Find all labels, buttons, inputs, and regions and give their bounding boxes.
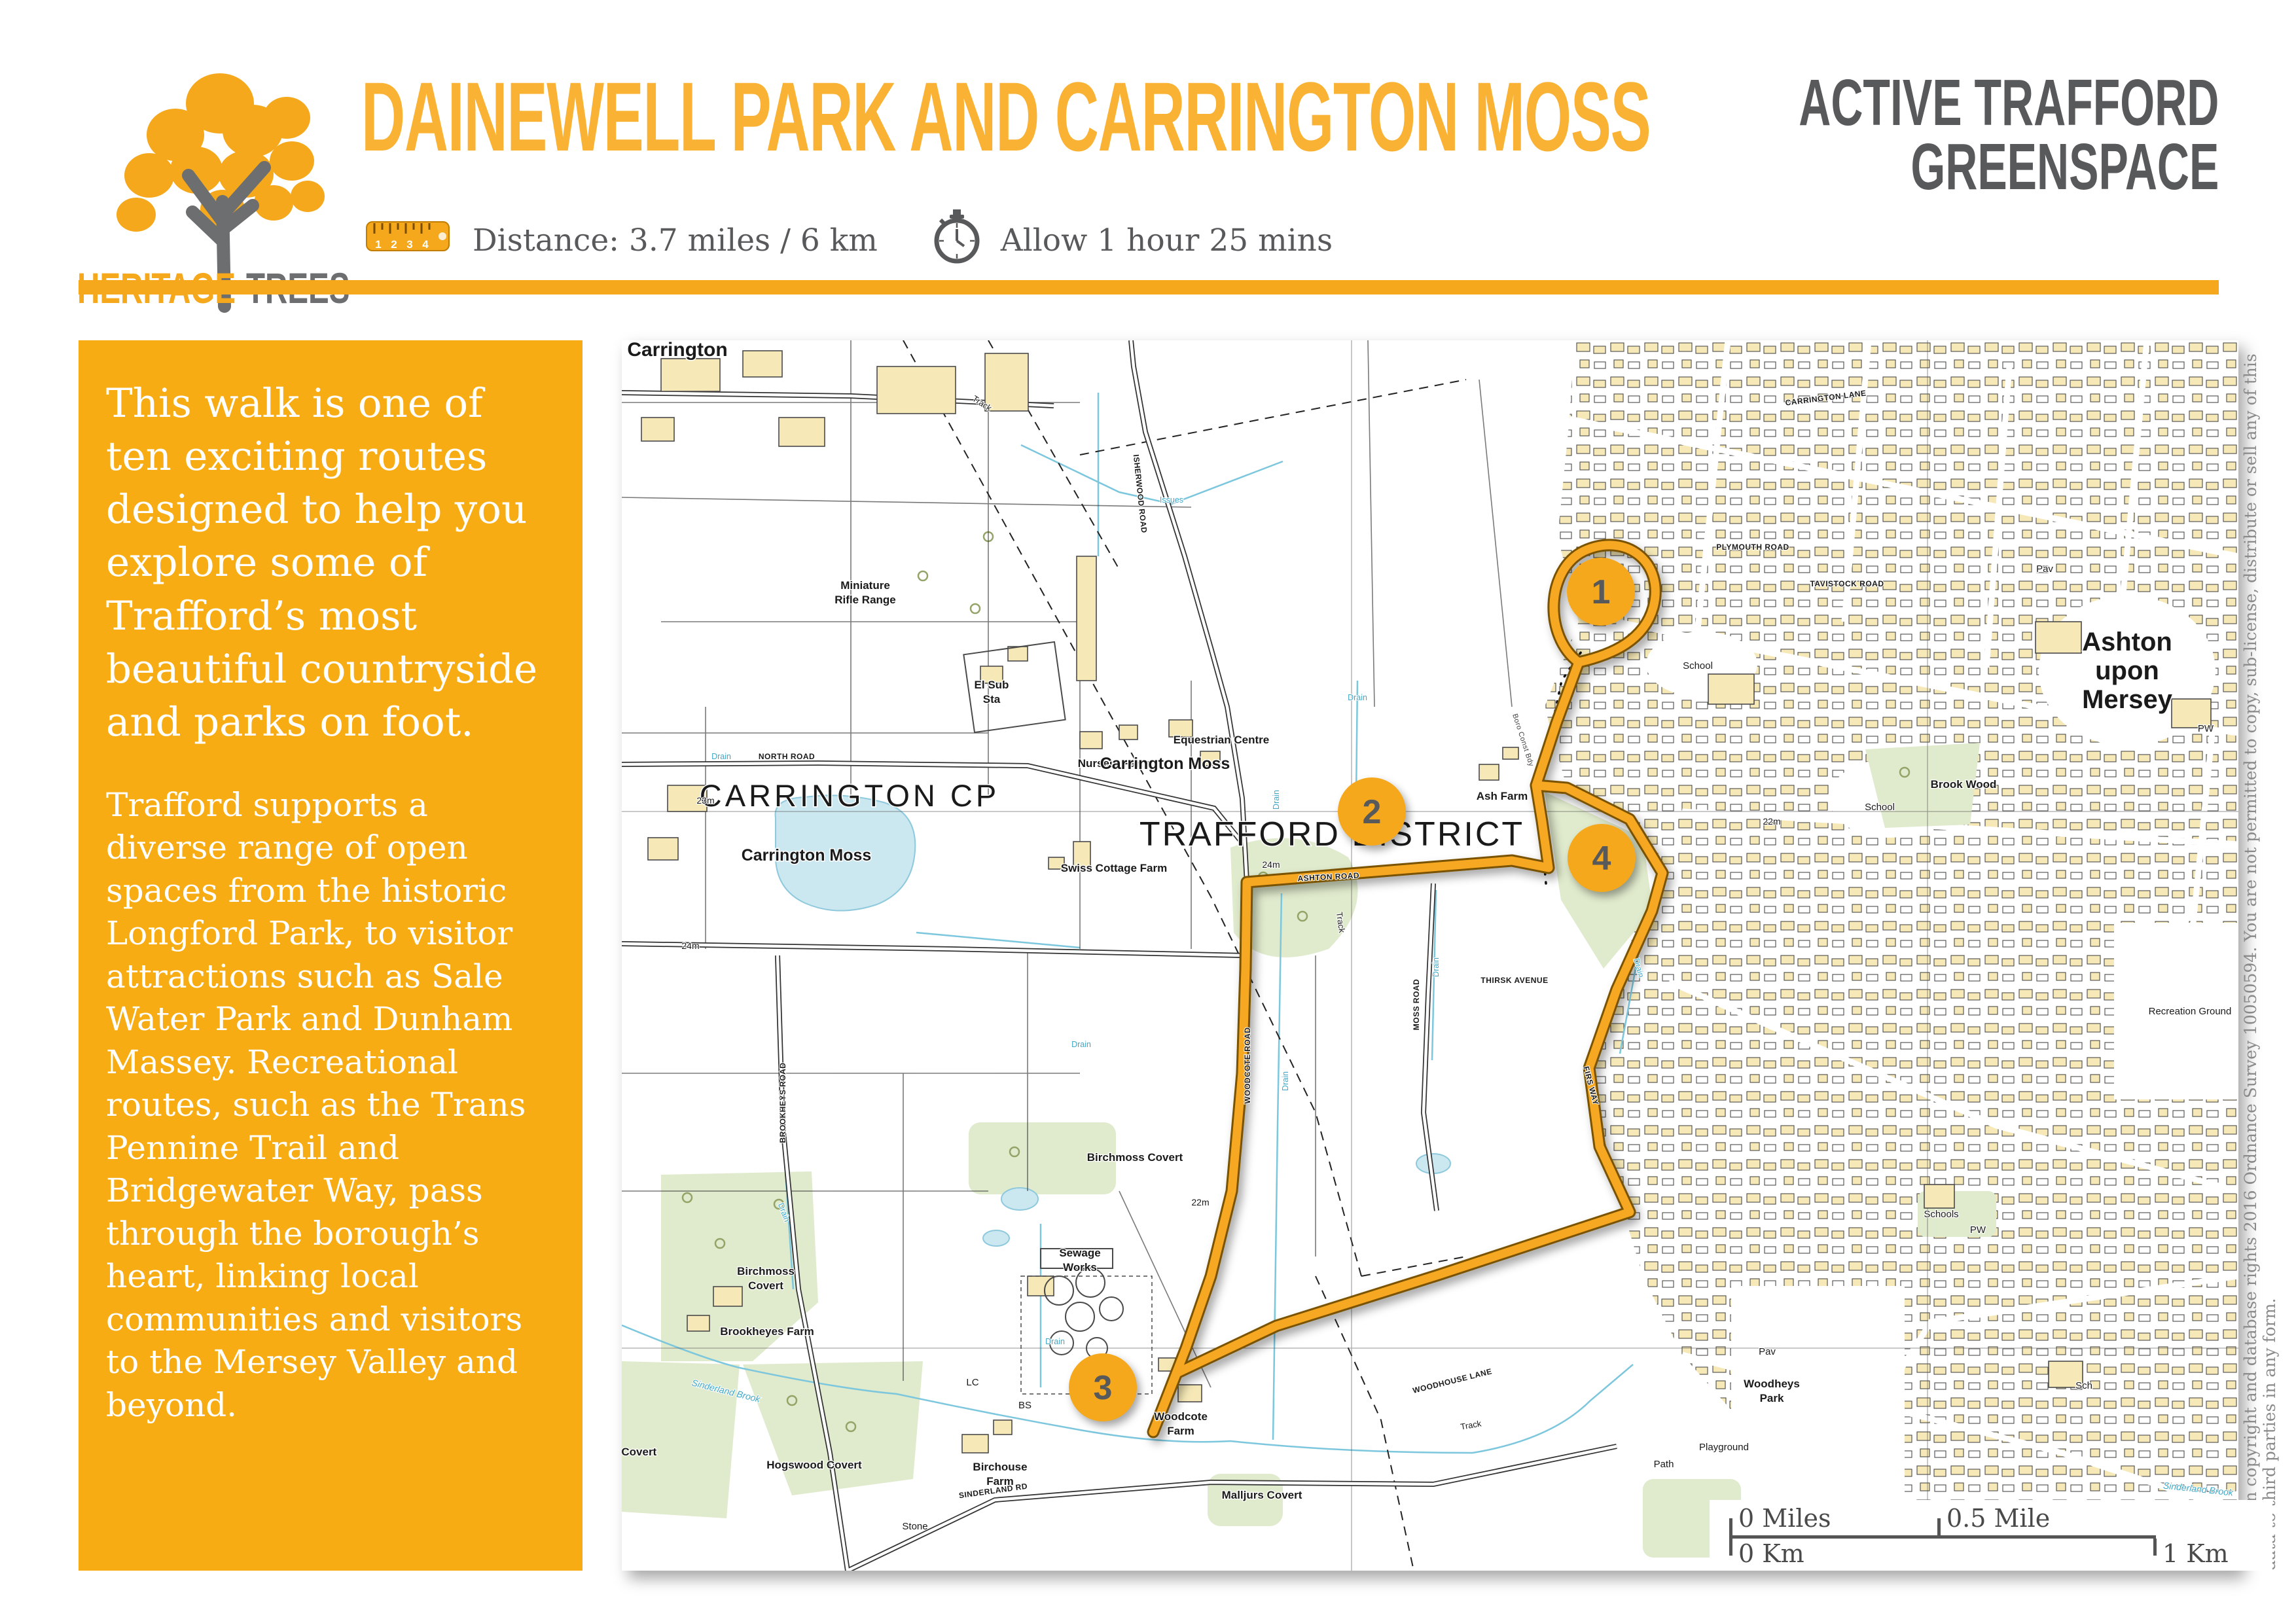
scalebar-tick <box>1729 1518 1732 1535</box>
scalebar-tick <box>1937 1518 1941 1535</box>
map-label: 24m <box>681 940 699 951</box>
scalebar-tick <box>2153 1539 2157 1556</box>
map-copyright: © Crown copyright and database rights 20… <box>2241 327 2275 1571</box>
map-scalebar: 0 Miles 0.5 Mile 0 Km 1 Km <box>1710 1500 2272 1571</box>
header-rule <box>79 280 2219 294</box>
map-label: Brook Wood <box>1931 778 1997 791</box>
sidebar: This walk is one of ten exciting routes … <box>79 340 583 1571</box>
svg-text:1: 1 <box>375 238 381 251</box>
map-label: Hogswood Covert <box>766 1459 862 1471</box>
map-label: Issues <box>1160 495 1183 505</box>
map-label: Carrington Moss <box>1100 755 1230 773</box>
waypoint-badge-2: 2 <box>1338 777 1406 846</box>
map-label: TRAFFORD DISTRICT <box>1139 815 1524 853</box>
programme-line2: GREENSPACE <box>1799 135 2219 199</box>
programme-logo: ACTIVE TRAFFORD GREENSPACE <box>1601 71 2219 199</box>
map-label: 22m <box>1763 816 1780 827</box>
map-label: Drain <box>711 752 731 761</box>
map-label: Sch <box>2075 1380 2092 1391</box>
duration-label: Allow 1 hour 25 mins <box>1001 223 1333 259</box>
heritage-trees-logo: HERITAGE TREES <box>77 58 378 313</box>
map-label: El Sub <box>975 679 1009 691</box>
map-label: Drain <box>1431 957 1441 977</box>
map-label: Carrington <box>627 340 727 361</box>
svg-text:1: 1 <box>1592 573 1611 611</box>
scalebar-km-start: 0 Km <box>1738 1539 1804 1568</box>
map-label: upon <box>2095 656 2159 685</box>
map-label: PW <box>1970 1224 1986 1236</box>
map-label: Park <box>1760 1392 1784 1404</box>
map-label: School <box>1683 660 1713 671</box>
map-label: Miniature <box>840 579 890 592</box>
map-label: Pav <box>2036 563 2053 575</box>
map-label: 24m <box>1262 859 1280 870</box>
map-label: PLYMOUTH ROAD <box>1716 543 1789 552</box>
map-label: Brookheys Covert <box>622 1446 657 1458</box>
sidebar-intro: This walk is one of ten exciting routes … <box>106 377 555 749</box>
map-label: Works <box>1063 1261 1097 1274</box>
map-label: Woodcote <box>1154 1410 1208 1423</box>
map-label: Equestrian Centre <box>1174 734 1269 746</box>
map-label: Drain <box>1071 1040 1091 1049</box>
walk-meta-row: 1 2 3 4 Distance: 3.7 miles / 6 km <box>365 208 1333 272</box>
map-label: 23m <box>696 795 714 806</box>
waypoint-badge-4: 4 <box>1568 824 1636 892</box>
map-label: LC <box>966 1377 978 1388</box>
svg-text:3: 3 <box>1094 1369 1113 1407</box>
map-label: School <box>1865 802 1895 813</box>
map-label: BS <box>1018 1400 1031 1411</box>
map-label: Drain <box>1272 790 1281 810</box>
scalebar-line <box>1729 1535 2156 1539</box>
stopwatch-icon <box>931 208 982 272</box>
map-label: Sta <box>983 693 1001 705</box>
waypoint-badge-3: 3 <box>1069 1353 1137 1421</box>
map-label: Drain <box>1348 693 1367 702</box>
map-label: Farm <box>1167 1425 1194 1437</box>
map-label: TAVISTOCK ROAD <box>1810 579 1884 588</box>
map-label: Brookheyes Farm <box>720 1325 814 1338</box>
map-label: Birchmoss <box>737 1265 795 1277</box>
map-label: Swiss Cottage Farm <box>1061 862 1168 874</box>
scalebar-km-end: 1 Km <box>2162 1539 2229 1568</box>
ruler-icon: 1 2 3 4 <box>365 217 454 264</box>
waypoint-badge-1: 1 <box>1567 558 1635 626</box>
svg-text:2: 2 <box>391 238 397 251</box>
svg-text:4: 4 <box>422 238 429 251</box>
map-label: PW <box>2198 723 2214 734</box>
map-label: WOODCOTE ROAD <box>1243 1027 1252 1103</box>
map-label: Recreation Ground <box>2149 1006 2232 1017</box>
map-label: NORTH ROAD <box>759 752 815 761</box>
sidebar-body: Trafford supports a diverse range of ope… <box>106 784 555 1427</box>
map-label: Ash Farm <box>1477 790 1528 802</box>
map-label: Ashton <box>2082 628 2172 656</box>
scalebar-tick <box>1729 1539 1732 1556</box>
svg-text:4: 4 <box>1592 840 1611 878</box>
map-label: BROOKHEYS ROAD <box>778 1062 787 1143</box>
svg-text:3: 3 <box>406 238 412 251</box>
map-label: Mersey <box>2082 685 2173 714</box>
map-label: Covert <box>748 1279 783 1292</box>
distance-label: Distance: 3.7 miles / 6 km <box>473 223 878 259</box>
map-label: THIRSK AVENUE <box>1480 976 1548 985</box>
map-label: Path <box>1654 1459 1674 1470</box>
map-label: Malljurs Covert <box>1222 1489 1302 1501</box>
map-label: Birchouse <box>973 1461 1027 1473</box>
map-label: CARRINGTON CP <box>700 778 999 813</box>
page-title: DAINEWELL PARK AND CARRINGTON MOSS <box>361 60 1650 173</box>
map-label: Schools <box>1924 1209 1958 1220</box>
map-label: Birchmoss Covert <box>1087 1151 1183 1164</box>
programme-line1: ACTIVE TRAFFORD <box>1799 71 2219 135</box>
scalebar-miles-start: 0 Miles <box>1738 1504 1831 1533</box>
leaflet-page: HERITAGE TREES DAINEWELL PARK AND CARRIN… <box>0 0 2296 1623</box>
map-label: Drain <box>1045 1337 1065 1346</box>
map-label: Stone <box>902 1521 927 1532</box>
map-label: Playground <box>1699 1442 1749 1453</box>
map-label: Rifle Range <box>834 594 896 606</box>
svg-text:2: 2 <box>1363 793 1382 831</box>
map-label: 22m <box>1191 1197 1209 1207</box>
scalebar-miles-mid: 0.5 Mile <box>1946 1504 2050 1533</box>
route-map: CarringtonMiniatureRifle RangeEl SubStaN… <box>622 340 2238 1571</box>
map-label: Drain <box>1281 1071 1290 1091</box>
map-label: MOSS ROAD <box>1412 979 1421 1031</box>
map-label: Pav <box>1759 1346 1776 1357</box>
map-label: Carrington Moss <box>742 846 872 865</box>
map-label: Woodheys <box>1744 1378 1800 1390</box>
map-label: Sewage <box>1059 1247 1100 1259</box>
